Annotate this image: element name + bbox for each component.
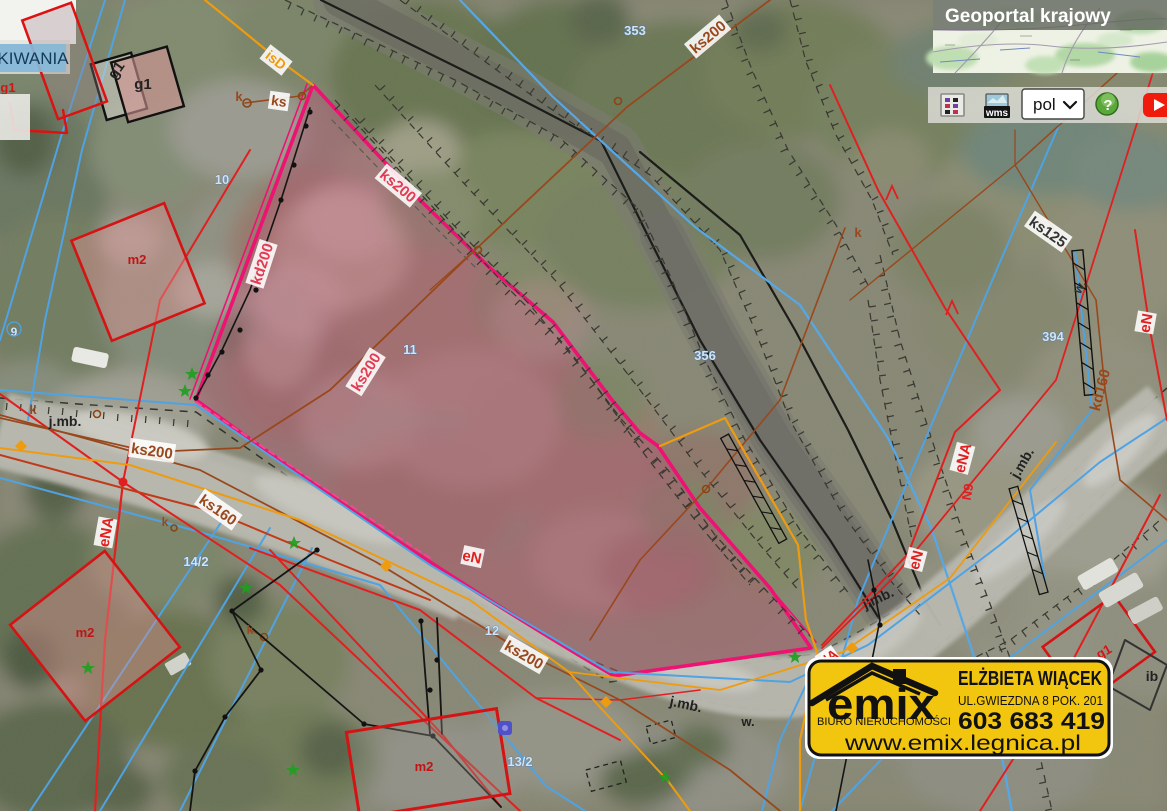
svg-text:BIURO NIERUCHOMOŚCI: BIURO NIERUCHOMOŚCI (817, 715, 951, 728)
svg-text:k: k (247, 623, 254, 637)
svg-text:k: k (162, 515, 169, 529)
svg-text:356: 356 (694, 348, 716, 363)
svg-text:www.emix.legnica.pl: www.emix.legnica.pl (844, 732, 1081, 755)
svg-text:14/2: 14/2 (183, 554, 208, 569)
svg-text:wms: wms (985, 108, 1009, 119)
svg-text:N9: N9 (959, 482, 977, 501)
svg-text:ks: ks (270, 92, 288, 110)
svg-text:10: 10 (215, 172, 229, 187)
svg-text:eN: eN (1136, 312, 1156, 334)
svg-text:m2: m2 (76, 625, 95, 640)
svg-text:w.: w. (740, 714, 754, 729)
svg-text:?: ? (1103, 97, 1112, 114)
svg-text:UL.GWIEZDNA 8 POK. 201: UL.GWIEZDNA 8 POK. 201 (958, 693, 1103, 708)
svg-text:353: 353 (624, 23, 646, 38)
svg-text:394: 394 (1042, 329, 1064, 344)
svg-text:pol: pol (1033, 95, 1056, 114)
svg-text:ELŻBIETA WIĄCEK: ELŻBIETA WIĄCEK (958, 667, 1102, 690)
svg-text:g1: g1 (0, 80, 15, 95)
svg-text:m2: m2 (415, 759, 434, 774)
svg-text:12: 12 (485, 623, 499, 638)
svg-text:603 683 419: 603 683 419 (958, 708, 1105, 735)
svg-text:k: k (854, 225, 862, 240)
svg-text:j.mb.: j.mb. (48, 413, 82, 429)
svg-text:m2: m2 (128, 252, 147, 267)
svg-text:KIWANIA: KIWANIA (0, 49, 69, 68)
svg-text:g1: g1 (134, 76, 152, 93)
svg-text:Geoportal krajowy: Geoportal krajowy (945, 6, 1111, 27)
svg-text:ib: ib (1146, 668, 1158, 684)
svg-text:11: 11 (403, 342, 417, 357)
svg-text:k: k (29, 402, 37, 417)
svg-text:k: k (235, 89, 243, 104)
svg-text:9: 9 (11, 325, 18, 339)
svg-text:13/2: 13/2 (507, 754, 532, 769)
